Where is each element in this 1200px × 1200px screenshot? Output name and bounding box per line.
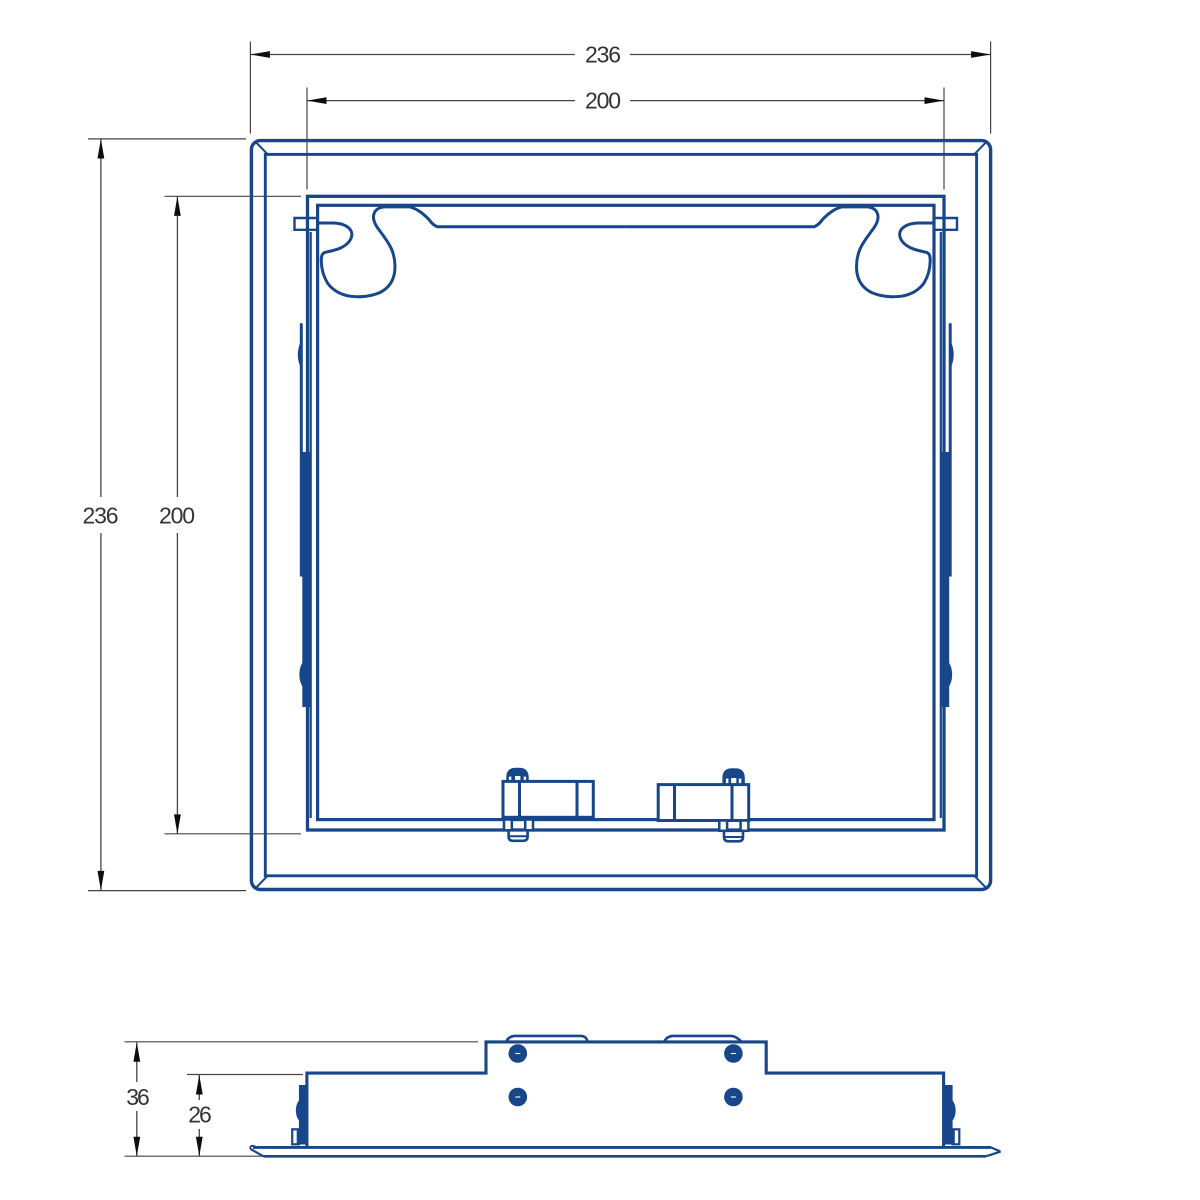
svg-text:26: 26 <box>188 1101 212 1127</box>
svg-text:200: 200 <box>585 88 621 114</box>
svg-text:236: 236 <box>83 503 119 529</box>
svg-text:36: 36 <box>126 1084 150 1110</box>
svg-text:200: 200 <box>159 503 195 529</box>
svg-text:236: 236 <box>585 42 621 68</box>
